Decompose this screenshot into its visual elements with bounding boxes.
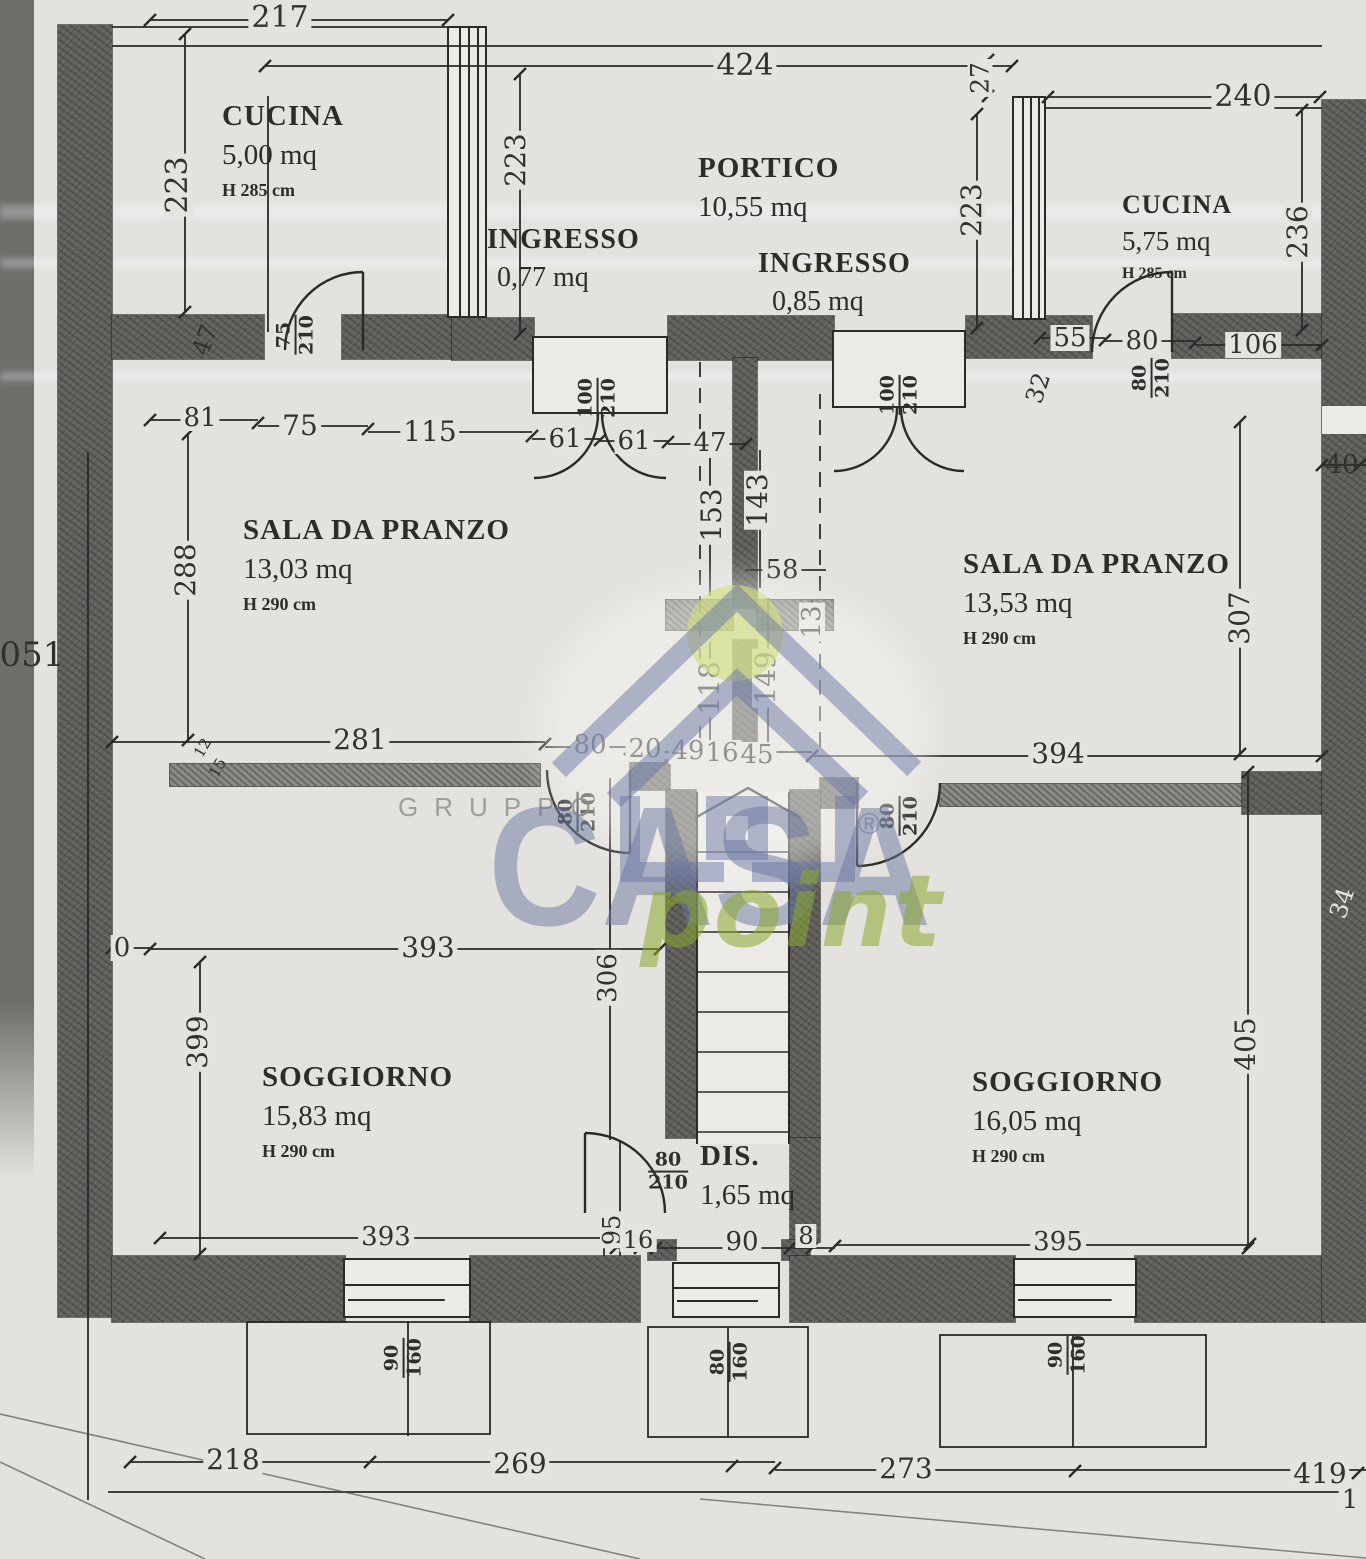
room-height: H 290 cm	[972, 1146, 1163, 1167]
wall	[630, 760, 670, 790]
dim-240: 240	[1211, 82, 1274, 112]
room-height: H 290 cm	[262, 1141, 453, 1162]
room-name: SOGGIORNO	[972, 1066, 1163, 1099]
dim-13: 13	[799, 602, 825, 641]
dim-223-b: 223	[502, 130, 530, 189]
room-label-sala-dx: SALA DA PRANZO 13,53 mq H 290 cm	[963, 548, 1230, 649]
scan-left-margin	[0, 0, 34, 1180]
dim-217: 217	[248, 3, 311, 33]
window-size-sx: 90160	[383, 1338, 426, 1378]
room-label-soggiorno-dx: SOGGIORNO 16,05 mq H 290 cm	[972, 1066, 1163, 1167]
door-height: 210	[597, 378, 620, 418]
dim-118: 118	[696, 658, 724, 717]
room-area: 10,55 mq	[698, 191, 839, 224]
door-size-ingresso-dx: 100210	[879, 375, 922, 415]
room-name: CUCINA	[1122, 190, 1232, 220]
wall	[1242, 772, 1322, 814]
room-label-ingresso-sx: INGRESSO 0,77 mq	[487, 224, 640, 294]
window-height: 160	[729, 1342, 752, 1382]
room-area: 0,85 mq	[772, 286, 911, 318]
wall-bottom	[790, 1256, 1015, 1322]
dim-424: 424	[713, 51, 776, 81]
door-width: 80	[655, 1151, 681, 1171]
wall-bottom	[112, 1256, 345, 1322]
dim-269: 269	[490, 1450, 549, 1478]
window-partition-right	[1012, 96, 1046, 320]
wall-front	[668, 316, 834, 360]
door-size-cucina-sx: 75210	[275, 315, 318, 355]
room-name: CUCINA	[222, 100, 344, 133]
door-size-soggiorno-sx: 80210	[557, 792, 600, 832]
door-height: 210	[648, 1171, 688, 1194]
room-label-dis: DIS. 1,65 mq	[700, 1140, 795, 1212]
dim-149: 149	[752, 648, 780, 707]
room-name: DIS.	[700, 1140, 795, 1173]
dim-47-b: 47	[690, 430, 729, 456]
dim-27: 27	[968, 59, 993, 97]
dim-81: 81	[180, 405, 219, 431]
dim-288: 288	[172, 540, 200, 599]
dim-16-a: 16	[702, 740, 741, 766]
room-label-cucina-sx: CUCINA 5,00 mq H 285 cm	[222, 100, 344, 201]
dim-153: 153	[698, 485, 726, 544]
dim-419: 419	[1290, 1460, 1349, 1488]
room-area: 13,03 mq	[243, 553, 510, 586]
wall-front	[342, 315, 452, 359]
dim-051: 051	[0, 638, 67, 672]
wall-notch	[1322, 406, 1366, 434]
wall-bottom	[1135, 1256, 1324, 1322]
dim-80-k: 80	[1122, 328, 1161, 354]
door-height: 210	[295, 315, 318, 355]
door-height: 210	[1151, 358, 1174, 398]
dim-306: 306	[595, 950, 621, 1006]
window-size-dx: 90160	[1047, 1335, 1090, 1375]
window-center	[672, 1262, 780, 1318]
dim-218: 218	[203, 1446, 262, 1474]
room-label-portico: PORTICO 10,55 mq	[698, 152, 839, 224]
dim-273: 273	[876, 1455, 935, 1483]
room-height: H 290 cm	[963, 628, 1230, 649]
dim-75: 75	[279, 412, 321, 440]
room-area: 0,77 mq	[497, 262, 640, 294]
wall-hatch	[940, 784, 1242, 806]
room-label-sala-sx: SALA DA PRANZO 13,03 mq H 290 cm	[243, 514, 510, 615]
wall	[820, 778, 858, 808]
dim-61-b: 61	[614, 428, 653, 454]
dim-55: 55	[1050, 325, 1089, 351]
door-size-soggiorno-dx: 80210	[879, 796, 922, 836]
staircase	[696, 792, 790, 1144]
room-name: SALA DA PRANZO	[243, 514, 510, 547]
dim-223-c: 223	[958, 180, 986, 239]
door-height: 210	[899, 375, 922, 415]
room-area: 5,75 mq	[1122, 226, 1232, 257]
wall-bottom	[470, 1256, 640, 1322]
door-size-ingresso-sx: 100210	[577, 378, 620, 418]
wall-outer-right	[1322, 100, 1366, 1322]
room-name: PORTICO	[698, 152, 839, 185]
dim-399: 399	[184, 1012, 212, 1071]
dim-20: 20	[625, 736, 664, 762]
dim-393-b: 393	[358, 1224, 414, 1250]
door-width: 80	[557, 799, 577, 825]
dim-16-b: 16	[620, 1228, 657, 1252]
dim-393-a: 393	[398, 934, 457, 962]
door-width: 100	[577, 378, 597, 418]
dim-90-a: 90	[722, 1229, 761, 1255]
window-width: 90	[383, 1345, 403, 1371]
room-height: H 285 cm	[222, 180, 344, 201]
door-size-dis: 80210	[648, 1151, 688, 1194]
door-width: 75	[275, 322, 295, 348]
dim-61-a: 61	[545, 426, 584, 452]
wall-hatch	[666, 600, 733, 630]
door-width: 100	[879, 375, 899, 415]
dim-115: 115	[400, 418, 459, 446]
room-name: SALA DA PRANZO	[963, 548, 1230, 581]
room-name: SOGGIORNO	[262, 1061, 453, 1094]
window-size-c: 80160	[709, 1342, 752, 1382]
dim-1: 1	[1339, 1487, 1362, 1513]
window-height: 160	[1067, 1335, 1090, 1375]
dim-281: 281	[330, 726, 389, 754]
wall-stair-left	[666, 790, 696, 1138]
room-name: INGRESSO	[758, 248, 911, 280]
wall-front	[452, 318, 534, 360]
window-height: 160	[403, 1338, 426, 1378]
room-area: 13,53 mq	[963, 587, 1230, 620]
door-width: 80	[1131, 365, 1151, 391]
window-width: 80	[709, 1349, 729, 1375]
window-partition-left	[447, 26, 487, 318]
dim-143: 143	[744, 470, 772, 529]
room-label-soggiorno-sx: SOGGIORNO 15,83 mq H 290 cm	[262, 1061, 453, 1162]
room-label-cucina-dx: CUCINA 5,75 mq H 285 cm	[1122, 190, 1232, 283]
door-height: 210	[899, 796, 922, 836]
dim-106: 106	[1225, 332, 1281, 358]
door-width: 80	[879, 803, 899, 829]
room-name: INGRESSO	[487, 224, 640, 256]
room-height: H 290 cm	[243, 594, 510, 615]
dim-45: 45	[737, 742, 776, 768]
door-height: 210	[577, 792, 600, 832]
dim-40: 40	[1322, 452, 1361, 478]
dim-223-a: 223	[163, 153, 193, 216]
door-size-cucina-dx: 80210	[1131, 358, 1174, 398]
dim-80-a: 80	[570, 732, 609, 758]
room-area: 15,83 mq	[262, 1100, 453, 1133]
dim-405: 405	[1232, 1014, 1260, 1073]
room-area: 1,65 mq	[700, 1179, 795, 1212]
dim-0: 0	[111, 935, 134, 961]
window-width: 90	[1047, 1342, 1067, 1368]
dim-236: 236	[1284, 202, 1312, 261]
dim-395: 395	[1030, 1229, 1086, 1255]
room-area: 5,00 mq	[222, 139, 344, 172]
dim-58: 58	[762, 557, 801, 583]
room-height: H 285 cm	[1122, 265, 1232, 283]
room-area: 16,05 mq	[972, 1105, 1163, 1138]
window-right	[1013, 1258, 1137, 1318]
wall-stair-right	[790, 790, 820, 1138]
room-label-ingresso-dx: INGRESSO 0,85 mq	[758, 248, 911, 318]
dim-307: 307	[1226, 588, 1254, 647]
window-left	[343, 1258, 471, 1318]
dim-8: 8	[795, 1224, 816, 1248]
dim-394: 394	[1028, 740, 1087, 768]
